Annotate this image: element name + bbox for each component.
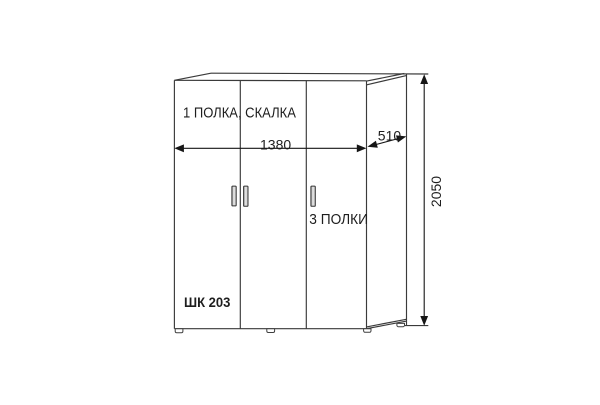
svg-text:1 ПОЛКА, СКАЛКА: 1 ПОЛКА, СКАЛКА [183,103,297,120]
svg-text:1380: 1380 [260,137,291,153]
svg-text:3 ПОЛКИ: 3 ПОЛКИ [309,211,368,227]
svg-text:ШК 203: ШК 203 [184,294,231,310]
svg-text:2050: 2050 [428,176,444,207]
svg-text:510: 510 [378,128,402,144]
